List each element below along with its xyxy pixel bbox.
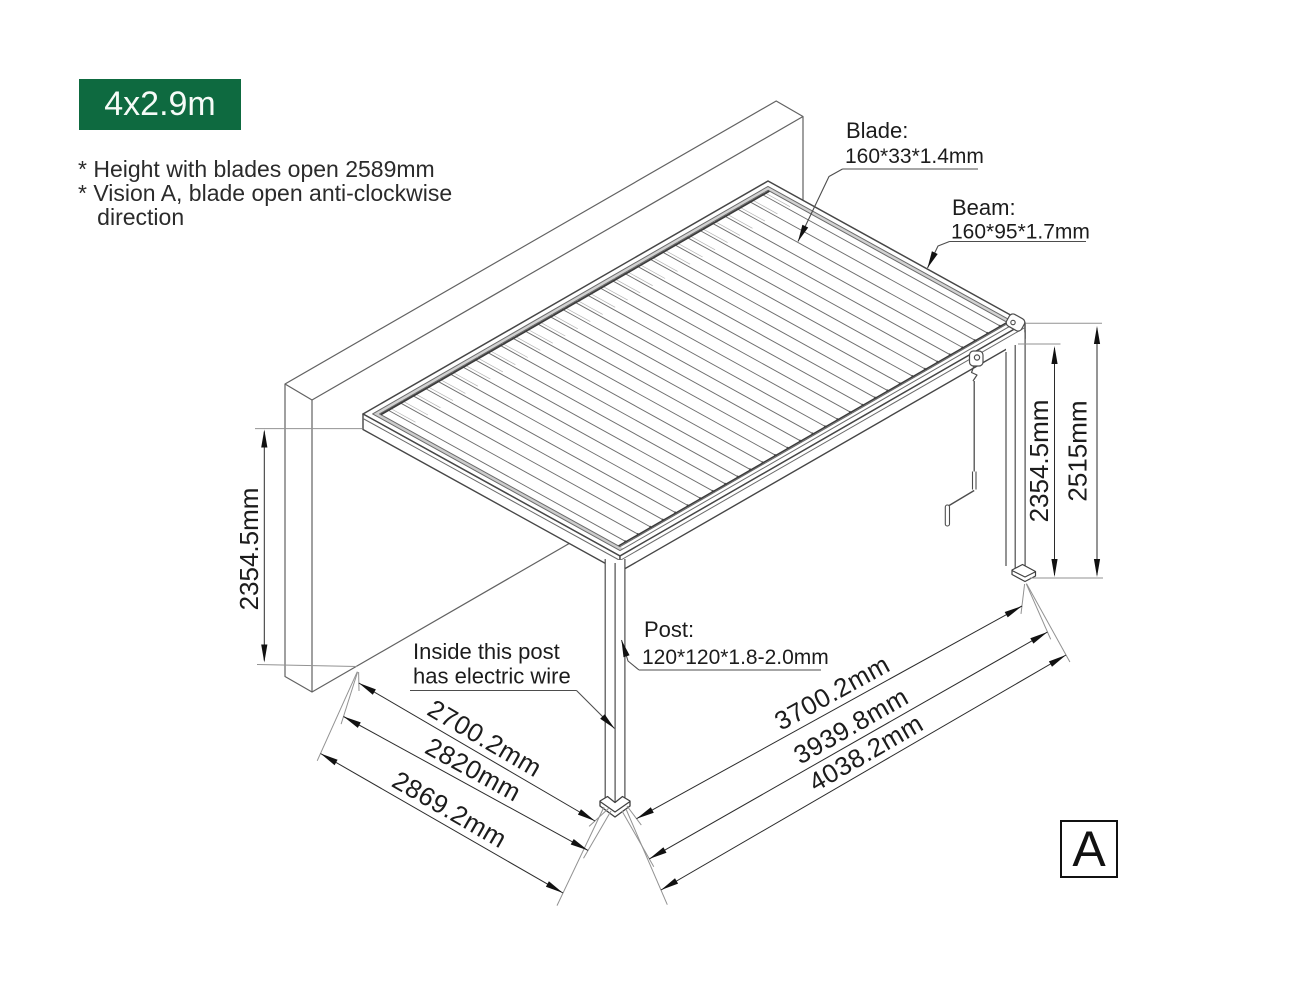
svg-text:2515mm: 2515mm bbox=[1063, 400, 1093, 501]
svg-text:120*120*1.8-2.0mm: 120*120*1.8-2.0mm bbox=[642, 646, 829, 669]
svg-text:2354.5mm: 2354.5mm bbox=[234, 488, 264, 611]
svg-text:Blade:: Blade: bbox=[846, 118, 908, 143]
svg-text:Inside this post: Inside this post bbox=[413, 639, 560, 664]
svg-text:2354.5mm: 2354.5mm bbox=[1024, 400, 1054, 523]
svg-text:160*33*1.4mm: 160*33*1.4mm bbox=[845, 145, 984, 168]
svg-text:Beam:: Beam: bbox=[952, 195, 1016, 220]
svg-text:has electric wire: has electric wire bbox=[413, 664, 571, 689]
svg-text:160*95*1.7mm: 160*95*1.7mm bbox=[951, 221, 1090, 244]
svg-text:Post:: Post: bbox=[644, 617, 694, 642]
